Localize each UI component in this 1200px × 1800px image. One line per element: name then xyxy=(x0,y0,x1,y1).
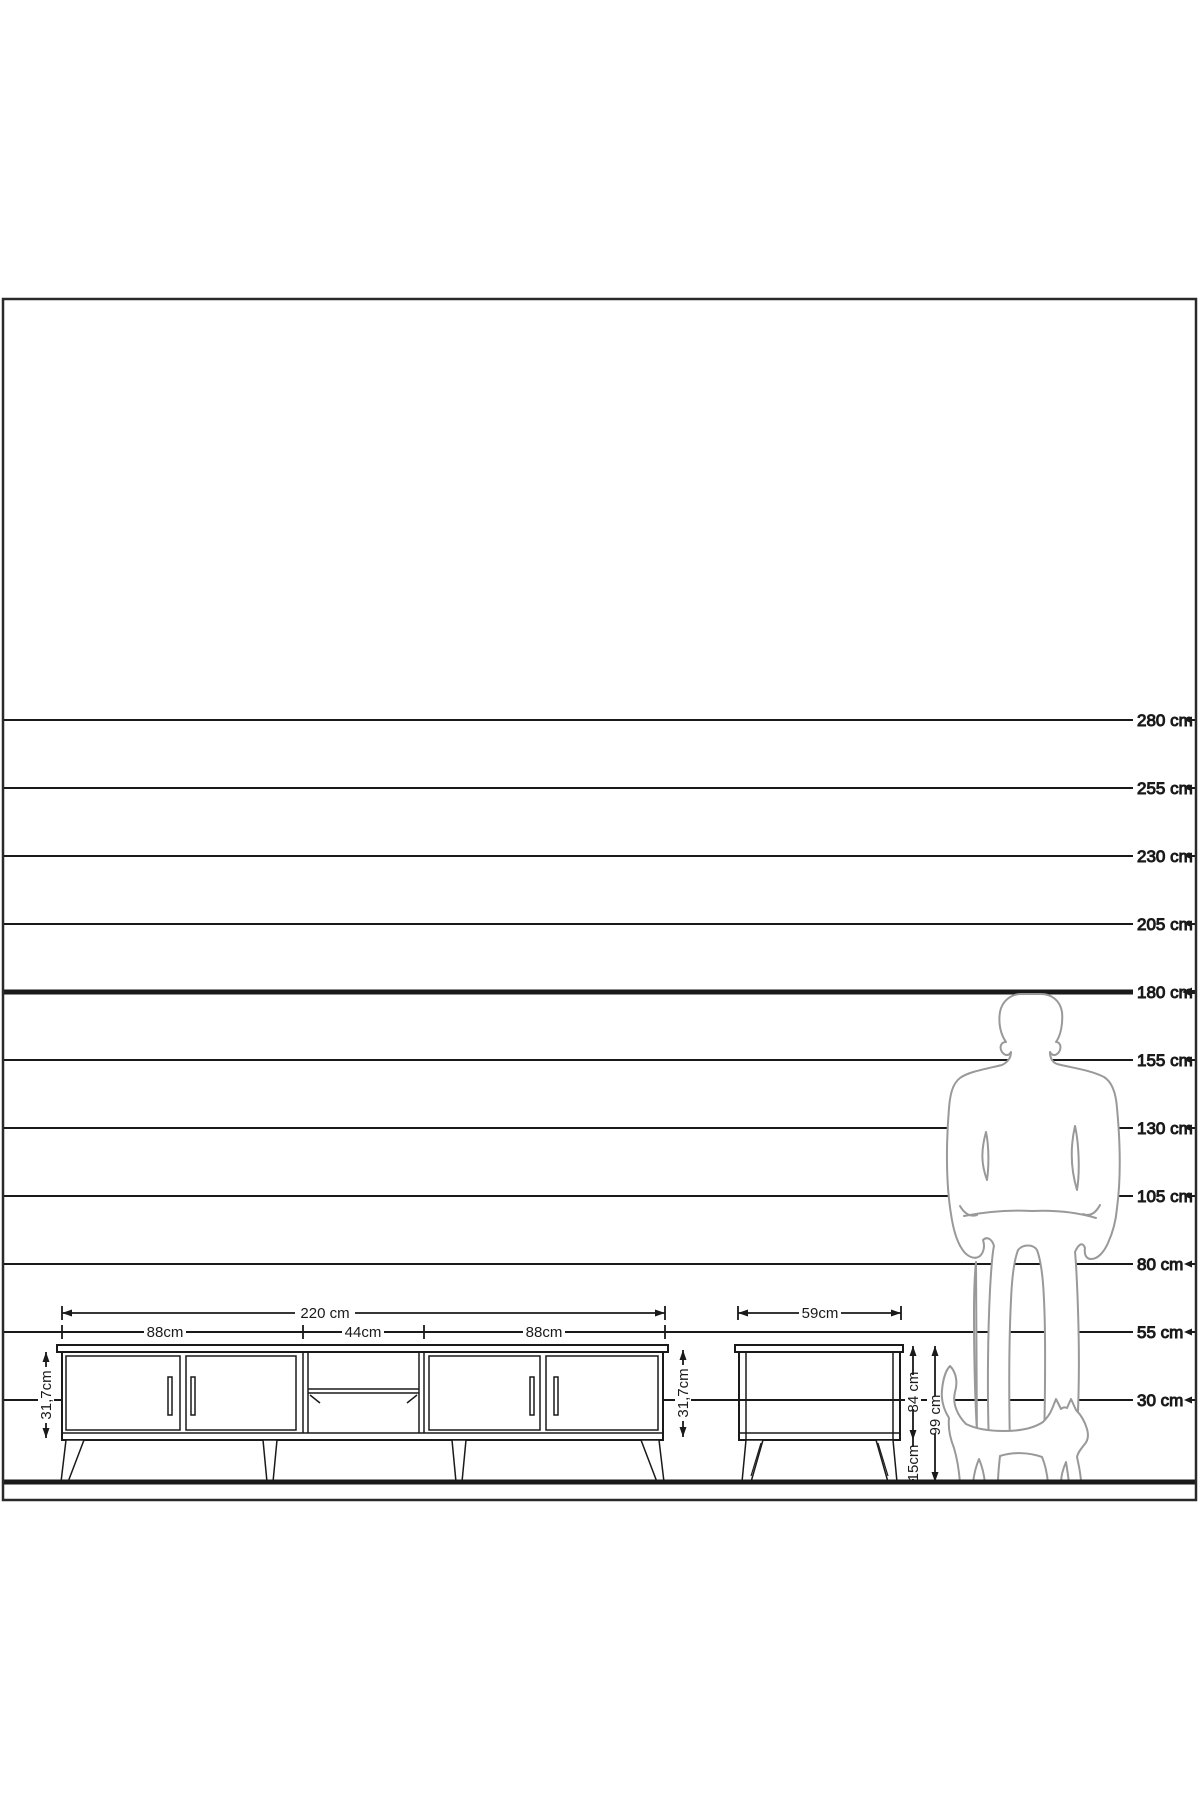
drawing-frame-bg xyxy=(3,299,1196,1500)
scale-label-230: 230 cm xyxy=(1137,847,1193,866)
scale-label-105: 105 cm xyxy=(1137,1187,1193,1206)
diagram-canvas: 280 cm 255 cm 230 cm 205 cm 180 xyxy=(0,0,1200,1800)
scale-label-130: 130 cm xyxy=(1137,1119,1193,1138)
tv-stand-body xyxy=(62,1352,663,1440)
scale-label-80: 80 cm xyxy=(1137,1255,1183,1274)
side-table-leg-height-label: 15cm xyxy=(905,1445,922,1482)
tv-stand-section-2-label: 44cm xyxy=(345,1324,382,1341)
scale-label-255: 255 cm xyxy=(1137,779,1193,798)
side-table-width-label: 59cm xyxy=(802,1305,839,1322)
tv-stand-top-board xyxy=(57,1345,668,1352)
furniture-scale-diagram: 280 cm 255 cm 230 cm 205 cm 180 xyxy=(0,0,1200,1800)
tv-stand-height-left-label: 31,7cm xyxy=(38,1370,55,1419)
scale-label-180: 180 cm xyxy=(1137,983,1193,1002)
scale-label-55: 55 cm xyxy=(1137,1323,1183,1342)
side-table-top-board xyxy=(735,1345,903,1352)
scale-label-155: 155 cm xyxy=(1137,1051,1193,1070)
tv-stand-height-right-label: 31,7cm xyxy=(675,1368,692,1417)
tv-stand-total-width-label: 220 cm xyxy=(300,1305,349,1322)
side-table-height-a-label: 84 cm xyxy=(905,1372,922,1413)
scale-label-280: 280 cm xyxy=(1137,711,1193,730)
scale-label-205: 205 cm xyxy=(1137,915,1193,934)
tv-stand-section-1-label: 88cm xyxy=(147,1324,184,1341)
scale-label-30: 30 cm xyxy=(1137,1391,1183,1410)
tv-stand-section-3-label: 88cm xyxy=(526,1324,563,1341)
